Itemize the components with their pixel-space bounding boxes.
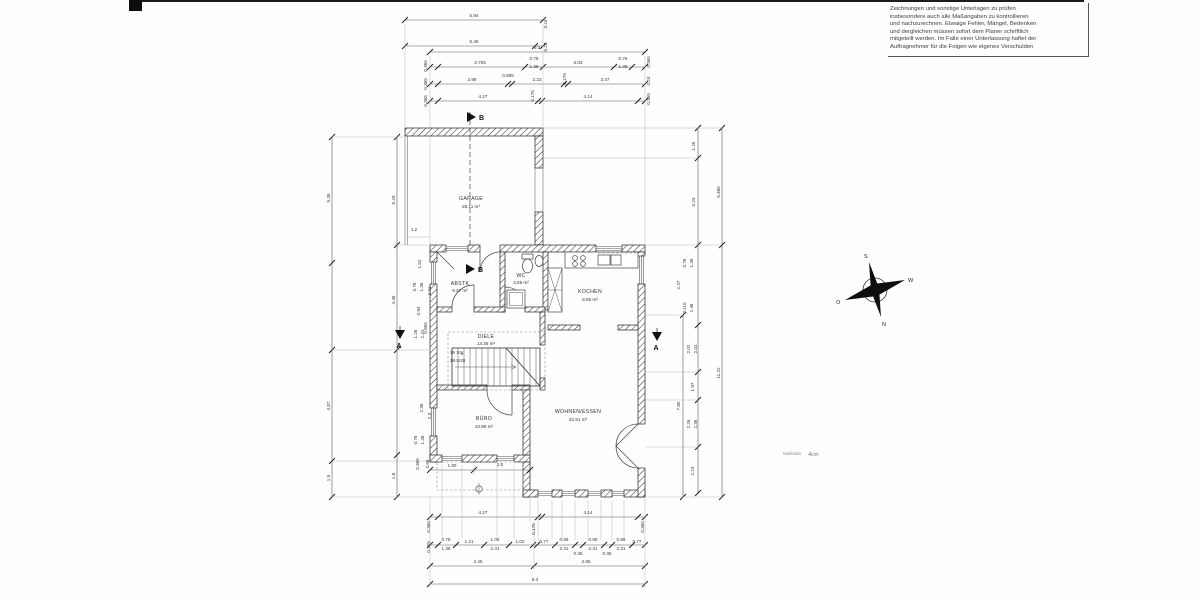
toilet-icon bbox=[523, 259, 533, 273]
dimension-label: 0.36 bbox=[574, 551, 583, 556]
compass-west: W bbox=[908, 278, 914, 284]
dimension-label: 0.365 bbox=[423, 78, 428, 90]
dimension-label: 1.52 bbox=[417, 259, 422, 268]
room-label-buero: BÜRO bbox=[476, 415, 492, 422]
dimension-label: 1.38 bbox=[619, 64, 628, 69]
extension-lines bbox=[332, 24, 722, 588]
dimension-label: 9.3 bbox=[532, 577, 539, 582]
dimension-label: 1.9 bbox=[326, 474, 331, 481]
dimension-label: 0.94 bbox=[416, 306, 421, 315]
dimension-lines bbox=[329, 17, 725, 587]
scale-label: Maßstab bbox=[783, 451, 801, 456]
dimension-label: 1.06 bbox=[491, 537, 500, 542]
section-b-arrow-plan bbox=[466, 264, 475, 274]
dimension-label: 0.36 bbox=[603, 551, 612, 556]
dimension-label: 1.38 bbox=[442, 546, 451, 551]
note-line: insbesondere auch alle Maßangaben zu kon… bbox=[890, 14, 1086, 22]
dimension-label: 2.98 bbox=[468, 77, 477, 82]
room-area-kochen: 8.85 m² bbox=[582, 297, 598, 302]
dimension-label: 1.21 bbox=[465, 539, 474, 544]
dimension-label: 2.24 bbox=[690, 466, 695, 475]
room-label-diele: DIELE bbox=[478, 334, 495, 340]
garage-outline bbox=[405, 112, 543, 245]
dimension-label: 9.3 bbox=[534, 45, 541, 50]
dimension-label: 0.365 bbox=[640, 521, 645, 533]
dimension-label: 1.38 bbox=[420, 435, 425, 444]
stove-burner bbox=[573, 256, 578, 261]
section-a-label-right: A bbox=[654, 345, 659, 352]
dimension-label: 5.94 bbox=[470, 13, 479, 18]
dimension-label: 0.76 bbox=[442, 537, 451, 542]
revision-note: Zeichnungen und sonstige Unterlagen zu p… bbox=[888, 3, 1089, 57]
room-label-abstk: ABSTK bbox=[451, 281, 470, 287]
stair-count-label: 15 Stg. bbox=[450, 350, 465, 355]
room-area-diele: 14.36 m² bbox=[477, 341, 496, 346]
dimension-label: 4.45 bbox=[474, 559, 483, 564]
dimension-label: 2.31 bbox=[560, 546, 569, 551]
dimension-label: 2.02 bbox=[686, 344, 691, 353]
room-label-kochen: KOCHEN bbox=[578, 289, 602, 295]
dimension-label: 0.365 bbox=[423, 95, 428, 107]
dimension-label: 0.175 bbox=[531, 523, 536, 535]
dimension-label: 5.39 bbox=[326, 193, 331, 202]
dimension-label: 2.31 bbox=[589, 546, 598, 551]
section-a-label-left: A bbox=[397, 343, 402, 350]
dimension-label: 1.38 bbox=[689, 258, 694, 267]
room-area-wohnen: 32.91 m² bbox=[569, 417, 588, 422]
dimension-label: 2.36 bbox=[693, 419, 698, 428]
dimension-label: 0.365 bbox=[426, 521, 431, 533]
dimension-label: 1.97 bbox=[690, 382, 695, 391]
dimension-label: 2.48 bbox=[689, 303, 694, 312]
dimension-label: 0.86 bbox=[425, 459, 430, 468]
dimension-label: 0.76 bbox=[619, 56, 628, 61]
note-line: Auftragnehmer für die Folgen wie eigenes… bbox=[890, 44, 1086, 52]
room-label-wc: WC bbox=[516, 273, 525, 279]
dimension-label: 0.24 bbox=[646, 76, 651, 85]
dimension-label: 0.24 bbox=[543, 42, 548, 51]
section-b-label-plan: B bbox=[478, 267, 483, 274]
dimension-label: 0.76 bbox=[413, 435, 418, 444]
compass-east: O bbox=[836, 300, 841, 306]
dimension-label: 0.76 bbox=[530, 56, 539, 61]
sink-icon bbox=[535, 256, 543, 267]
floor-plan-sheet: 5.945.460.240.249.33.7550.761.383.030.76… bbox=[0, 0, 1200, 600]
dimension-label: 0.24 bbox=[543, 19, 548, 28]
dimension-label: 0.89 bbox=[589, 537, 598, 542]
dimension-label: 2.31 bbox=[617, 546, 626, 551]
staircase bbox=[452, 348, 540, 386]
note-line: Zeichnungen und sonstige Unterlagen zu p… bbox=[890, 6, 1086, 14]
dimension-label: 3.755 bbox=[474, 60, 486, 65]
section-a-arrow-left bbox=[395, 330, 405, 339]
dimension-label: 4.85 bbox=[582, 559, 591, 564]
dimension-label: 2.3 bbox=[427, 412, 432, 419]
dimension-label: 4.14 bbox=[584, 510, 593, 515]
dimension-label: 1.8 bbox=[391, 472, 396, 479]
room-label-garage: GARAGE bbox=[459, 196, 483, 202]
dimension-label: 2.26 bbox=[686, 419, 691, 428]
dimension-label: 5.29 bbox=[391, 195, 396, 204]
dimension-label: 2.5 bbox=[497, 462, 504, 467]
dimension-label: 4.27 bbox=[479, 510, 488, 515]
note-line: mitgeteilt werden. Im Falle einer Unterl… bbox=[890, 36, 1086, 44]
section-b-label-top: B bbox=[479, 115, 484, 122]
note-line: und nachzurechnen. Etwaige Fehler, Mänge… bbox=[890, 21, 1086, 29]
compass-south: S bbox=[864, 254, 868, 260]
scale-note: Maßstab 4cm bbox=[783, 451, 819, 458]
dimension-label: 1.38 bbox=[419, 282, 424, 291]
compass-north: N bbox=[882, 322, 886, 328]
dimension-label: 1.90 bbox=[448, 463, 457, 468]
note-line: und dergleichen müssen sofort dem Planer… bbox=[890, 29, 1086, 37]
dimension-label: 0.365 bbox=[426, 541, 431, 553]
dimension-label: 0.86 bbox=[560, 537, 569, 542]
dimension-label: 2.31 bbox=[491, 546, 500, 551]
dimension-label: 1.25 bbox=[691, 141, 696, 150]
dimension-label: 7.80 bbox=[676, 401, 681, 410]
dimension-label: 0.175 bbox=[530, 90, 535, 102]
dimension-label: 2.41 bbox=[427, 286, 432, 295]
dimension-label: 1.26 bbox=[413, 329, 418, 338]
dimension-label: 4.27 bbox=[479, 94, 488, 99]
dimension-label: 5.46 bbox=[470, 39, 479, 44]
room-area-buero: 10.99 m² bbox=[475, 424, 494, 429]
dimension-label: 5.485 bbox=[716, 186, 721, 198]
section-b-arrow-top bbox=[467, 112, 476, 122]
dimension-label: 11.22 bbox=[716, 367, 721, 379]
dimension-label: 0.365 bbox=[423, 60, 428, 72]
section-a-arrow-right bbox=[652, 332, 662, 341]
dimension-label: 2.31 bbox=[693, 344, 698, 353]
dimension-label: 0.76 bbox=[682, 258, 687, 267]
dimension-label: 4.87 bbox=[326, 401, 331, 410]
floor-plan-drawing: 5.945.460.240.249.33.7550.761.383.030.76… bbox=[0, 0, 1200, 600]
scale-value: 4cm bbox=[808, 452, 819, 458]
stair-ratio-label: 18.5/28 bbox=[450, 358, 466, 363]
dimension-label: 2.23 bbox=[533, 77, 542, 82]
dimension-label: 0.115 bbox=[682, 302, 687, 314]
dimension-label: 0.365 bbox=[646, 93, 651, 105]
toilet-tank bbox=[522, 254, 533, 259]
dimension-label: 0.77 bbox=[540, 539, 549, 544]
room-area-wc: 3.55 m² bbox=[513, 280, 529, 285]
dimension-label: 0.365 bbox=[646, 56, 651, 68]
dimension-label: 5.23 bbox=[691, 197, 696, 206]
dimension-label: 0.175 bbox=[562, 73, 567, 85]
dimension-label: 0.885 bbox=[502, 73, 514, 78]
dimension-label: 3.47 bbox=[601, 77, 610, 82]
room-area-garage: 28.11 m² bbox=[462, 204, 480, 209]
dimension-label: 2.36 bbox=[419, 403, 424, 412]
dimension-label: 1.03 bbox=[516, 539, 525, 544]
compass-rose: S W O N bbox=[836, 254, 914, 328]
revision-note-lines: Zeichnungen und sonstige Unterlagen zu p… bbox=[890, 6, 1086, 52]
dimension-label: 1.38 bbox=[530, 64, 539, 69]
dimension-label: 1.2 bbox=[411, 227, 418, 232]
dimension-label: 4.46 bbox=[391, 295, 396, 304]
dimension-label: 4.14 bbox=[584, 94, 593, 99]
chimney-shaft bbox=[548, 268, 562, 312]
dimension-label: 0.86 bbox=[617, 537, 626, 542]
dimension-label: 3.03 bbox=[574, 60, 583, 65]
dimension-label: 0.77 bbox=[633, 539, 642, 544]
dimension-label: 0.365 bbox=[415, 458, 420, 470]
room-area-abstk: 8.37 m² bbox=[452, 288, 468, 293]
dimension-label: 2.31 bbox=[420, 329, 425, 338]
dimension-label: 2.47 bbox=[676, 280, 681, 289]
room-label-wohnen: WOHNEN/ESSEN bbox=[555, 409, 601, 415]
dimension-label: 0.76 bbox=[412, 282, 417, 291]
